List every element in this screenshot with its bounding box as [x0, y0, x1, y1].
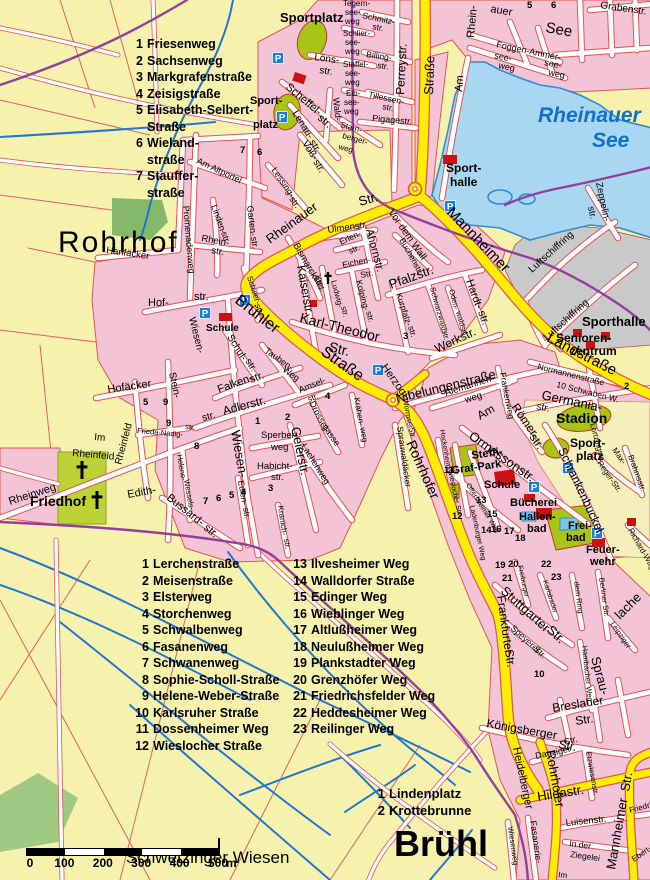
legend-item: 8Sophie-Scholl-Straße — [132, 672, 290, 689]
parking-icon: P — [200, 308, 211, 320]
street-number-marker: 2 — [624, 381, 629, 392]
scale-segment — [27, 849, 65, 855]
legend-item-number: 1 — [368, 786, 385, 803]
legend-item-number: 5 — [126, 102, 143, 135]
map-label: weg — [344, 17, 360, 26]
street-number-marker: 5 — [229, 490, 235, 501]
street-number-marker: 22 — [541, 559, 552, 570]
legend-item: 2Krottebrunne — [368, 803, 498, 820]
legend-item-name: Dossenheimer Weg — [153, 721, 290, 738]
scale-tick-label: 300 — [131, 856, 151, 870]
scale-tick-label: 100 — [54, 856, 74, 870]
street-number-marker: 4 — [241, 487, 247, 498]
legend-item-number: 23 — [290, 721, 307, 738]
street-number-marker: 9 — [166, 418, 171, 429]
map-label: Staffel- — [343, 60, 369, 69]
map-label: Im — [94, 432, 106, 444]
street-number-marker: 12 — [452, 511, 463, 522]
svg-text:P: P — [279, 113, 286, 124]
map-label: Eib- — [346, 89, 361, 98]
legend-item-name: Schwalbenweg — [153, 622, 290, 639]
legend-item-number: 6 — [126, 135, 143, 168]
legend-item-name: Lerchenstraße — [153, 556, 290, 573]
roundabout-icon — [409, 183, 422, 196]
legend-item-name: Storchenweg — [153, 606, 290, 623]
map-label: Bücherei — [510, 497, 557, 509]
scale-bar-segments — [26, 848, 220, 856]
legend-item-number: 18 — [290, 639, 307, 656]
legend-item-number: 16 — [290, 606, 307, 623]
legend-item: 7Stauffer- straße — [126, 168, 264, 201]
legend-item: 2Meisenstraße — [132, 573, 290, 590]
street-number-marker: 4 — [325, 391, 331, 402]
legend-numbered-streets-col1: 1Lerchenstraße2Meisenstraße3Elsterweg4St… — [132, 556, 290, 754]
legend-item-name: Helene-Weber-Straße — [153, 688, 290, 705]
legend-item-name: Heddesheimer Weg — [311, 705, 462, 722]
map-label: Straße — [421, 56, 437, 96]
map-label: Tegern- — [343, 0, 370, 8]
street-number-marker: 13 — [476, 495, 487, 506]
map-label: see- — [345, 69, 361, 78]
legend-item: 10Karlsruher Straße — [132, 705, 290, 722]
map-label: str. — [377, 60, 390, 71]
scale-tick-label: 500 — [208, 856, 228, 870]
map-label: Perreystr. — [393, 43, 410, 95]
map-label: Hof- — [148, 297, 169, 309]
street-number-marker: 8 — [194, 441, 199, 452]
scale-segment — [142, 849, 180, 855]
street-number-marker: 10 — [534, 669, 545, 680]
legend-item: 2Sachsenweg — [126, 53, 264, 70]
map-label: Schlier- — [343, 29, 370, 38]
map-label: see- — [344, 98, 360, 107]
legend-item-number: 22 — [290, 705, 307, 722]
legend-numbered-streets-top: 1Friesenweg2Sachsenweg3Markgrafenstraße4… — [126, 36, 264, 201]
city-map: PPPPPPPPP RohrhofBrühlRheinauerSeeSchwet… — [0, 0, 650, 880]
legend-item: 1Lindenplatz — [368, 786, 498, 803]
map-label: bad — [527, 523, 547, 535]
street-number-marker: 21 — [502, 573, 513, 584]
legend-item-name: Fasanenweg — [153, 639, 290, 656]
map-label: str. — [249, 236, 260, 249]
scale-segment — [181, 849, 219, 855]
legend-item: 13Ilvesheimer Weg — [290, 556, 462, 573]
map-label: Im — [558, 870, 568, 880]
legend-item: 17Altlußheimer Weg — [290, 622, 462, 639]
legend-item-name: Friedrichsfelder Weg — [311, 688, 462, 705]
legend-item-number: 11 — [132, 721, 149, 738]
street-number-marker: 3 — [268, 483, 273, 494]
legend-item: 1Friesenweg — [126, 36, 264, 53]
legend-item-number: 21 — [290, 688, 307, 705]
scale-tick-label: 0 — [27, 856, 34, 870]
scale-segment — [65, 849, 103, 855]
svg-text:P: P — [531, 483, 538, 494]
legend-item-name: Walldorfer Straße — [311, 573, 462, 590]
legend-item-name: Elisabeth-Selbert- Straße — [147, 102, 264, 135]
legend-item-name: Plankstadter Weg — [311, 655, 462, 672]
map-label: str. — [185, 422, 196, 432]
legend-item-name: Neulußheimer Weg — [311, 639, 462, 656]
legend-item-name: Edinger Weg — [311, 589, 462, 606]
street-number-marker: 5 — [143, 397, 149, 408]
legend-item: 7Schwanenweg — [132, 655, 290, 672]
map-canvas: PPPPPPPPP RohrhofBrühlRheinauerSeeSchwet… — [0, 0, 650, 880]
legend-item: 21Friedrichsfelder Weg — [290, 688, 462, 705]
legend-item-number: 3 — [126, 69, 143, 86]
legend-item-number: 20 — [290, 672, 307, 689]
legend-numbered-streets-col2: 13Ilvesheimer Weg14Walldorfer Straße15Ed… — [290, 556, 462, 738]
map-label: Brühl — [394, 823, 488, 864]
street-number-marker: 18 — [515, 533, 526, 544]
svg-text:P: P — [275, 54, 282, 65]
legend-item-name: Sachsenweg — [147, 53, 264, 70]
legend-item-number: 1 — [126, 36, 143, 53]
legend-bruehl: 1Lindenplatz2Krottebrunne — [368, 786, 498, 819]
street-number-marker: 5 — [527, 0, 533, 11]
legend-item-number: 5 — [132, 622, 149, 639]
legend-item: 1Lerchenstraße — [132, 556, 290, 573]
legend-item: 6Fasanenweg — [132, 639, 290, 656]
map-label: str. — [194, 291, 209, 303]
scale-bar: m 0100200300400500 — [26, 848, 256, 870]
legend-item-name: Stauffer- straße — [147, 168, 264, 201]
legend-item-name: Altlußheimer Weg — [311, 622, 462, 639]
legend-item: 18Neulußheimer Weg — [290, 639, 462, 656]
street-number-marker: 6 — [216, 493, 221, 504]
legend-item-number: 13 — [290, 556, 307, 573]
map-label: str. — [282, 538, 292, 550]
legend-item-number: 6 — [132, 639, 149, 656]
scale-bar-ticks: m 0100200300400500 — [26, 856, 256, 870]
legend-item-number: 3 — [132, 589, 149, 606]
legend-item: 6Wieland- straße — [126, 135, 264, 168]
legend-item: 3Markgrafenstraße — [126, 69, 264, 86]
street-number-marker: 16 — [491, 524, 502, 535]
legend-item-name: Zeisigstraße — [147, 86, 264, 103]
map-label: Am — [453, 75, 466, 92]
map-label: wehr — [589, 556, 616, 568]
map-label: weg — [343, 107, 359, 116]
scale-tick-label: 200 — [93, 856, 113, 870]
legend-item: 23Reilinger Weg — [290, 721, 462, 738]
map-label: Sport- — [446, 161, 481, 175]
map-label: weg — [344, 47, 360, 56]
map-label: weg — [344, 78, 360, 87]
legend-item-name: Wieslocher Straße — [153, 738, 290, 755]
map-label: Rheinauer — [538, 104, 643, 127]
legend-item: 20Grenzhöfer Weg — [290, 672, 462, 689]
street-number-marker: 7 — [203, 496, 208, 507]
map-label: See — [592, 129, 630, 152]
legend-item-number: 2 — [126, 53, 143, 70]
legend-item-name: Sophie-Scholl-Straße — [153, 672, 290, 689]
map-label: Feuer- — [586, 544, 620, 556]
legend-item-name: Meisenstraße — [153, 573, 290, 590]
legend-item-number: 4 — [132, 606, 149, 623]
legend-item-name: Elsterweg — [153, 589, 290, 606]
map-label: Sportplatz — [280, 10, 344, 25]
legend-item: 9Helene-Weber-Straße — [132, 688, 290, 705]
legend-item: 5Schwalbenweg — [132, 622, 290, 639]
map-label: see- — [345, 38, 361, 47]
parking-icon: P — [277, 112, 288, 124]
legend-item: 22Heddesheimer Weg — [290, 705, 462, 722]
legend-item-name: Friesenweg — [147, 36, 264, 53]
legend-item: 4Zeisigstraße — [126, 86, 264, 103]
legend-item: 11Dossenheimer Weg — [132, 721, 290, 738]
legend-item-number: 17 — [290, 622, 307, 639]
scale-tick-label: 400 — [170, 856, 190, 870]
legend-item-number: 12 — [132, 738, 149, 755]
legend-item-number: 1 — [132, 556, 149, 573]
legend-item: 14Walldorfer Straße — [290, 573, 462, 590]
legend-item-name: Schwanenweg — [153, 655, 290, 672]
legend-item-name: Lindenplatz — [389, 786, 498, 803]
public-building — [219, 313, 232, 321]
scale-segment — [104, 849, 142, 855]
map-label: bad — [566, 532, 586, 544]
road — [420, 0, 425, 196]
map-label: weg — [270, 442, 288, 453]
map-label: Habicht- — [257, 461, 292, 472]
legend-item-name: Wieland- straße — [147, 135, 264, 168]
legend-item: 4Storchenweg — [132, 606, 290, 623]
street-number-marker: 23 — [551, 572, 562, 583]
map-label: halle — [450, 175, 478, 189]
scale-bar-endtick — [218, 838, 220, 850]
map-label: str. — [241, 507, 253, 520]
legend-item-number: 9 — [132, 688, 149, 705]
map-label: Str. — [574, 711, 594, 728]
map-label: see- — [345, 8, 361, 17]
legend-item-number: 7 — [132, 655, 149, 672]
legend-item: 16Wieblinger Weg — [290, 606, 462, 623]
legend-item-number: 2 — [368, 803, 385, 820]
street-number-marker: 11 — [444, 465, 455, 476]
public-building — [627, 518, 636, 526]
street-number-marker: 2 — [285, 412, 290, 423]
legend-item-number: 2 — [132, 573, 149, 590]
street-number-marker: 20 — [508, 559, 519, 570]
legend-item: 3Elsterweg — [132, 589, 290, 606]
street-number-marker: 1 — [255, 416, 261, 427]
street-number-marker: 6 — [551, 0, 556, 11]
street-number-marker: 19 — [495, 560, 506, 571]
map-label: Str. — [502, 648, 518, 668]
legend-item: 15Edinger Weg — [290, 589, 462, 606]
legend-item: 5Elisabeth-Selbert- Straße — [126, 102, 264, 135]
map-label: str. — [319, 65, 334, 78]
street-number-marker: 9 — [163, 397, 168, 408]
legend-item-name: Wieblinger Weg — [311, 606, 462, 623]
legend-item-number: 14 — [290, 573, 307, 590]
map-label: Str. — [407, 427, 418, 440]
legend-item-number: 4 — [126, 86, 143, 103]
legend-item-number: 7 — [126, 168, 143, 201]
map-label: str. — [271, 472, 284, 483]
legend-item: 19Plankstadter Weg — [290, 655, 462, 672]
legend-item-name: Markgrafenstraße — [147, 69, 264, 86]
parking-icon: P — [273, 53, 284, 65]
street-number-marker: 3 — [403, 331, 408, 342]
legend-item-number: 15 — [290, 589, 307, 606]
legend-item-number: 10 — [132, 705, 149, 722]
legend-item-number: 8 — [132, 672, 149, 689]
map-label: str. — [210, 245, 224, 258]
legend-item-name: Grenzhöfer Weg — [311, 672, 462, 689]
map-label: Schule — [484, 479, 520, 491]
legend-item-name: Karlsruher Straße — [153, 705, 290, 722]
map-label: Sporthalle — [582, 314, 646, 329]
street-number-marker: 17 — [504, 526, 515, 537]
legend-item-name: Ilvesheimer Weg — [311, 556, 462, 573]
street-number-marker: 15 — [487, 509, 498, 520]
legend-item-name: Krottebrunne — [389, 803, 498, 820]
legend-item-number: 19 — [290, 655, 307, 672]
legend-item: 12Wieslocher Straße — [132, 738, 290, 755]
legend-item-name: Reilinger Weg — [311, 721, 462, 738]
svg-text:P: P — [202, 309, 209, 320]
map-label: Hallen- — [519, 511, 556, 523]
